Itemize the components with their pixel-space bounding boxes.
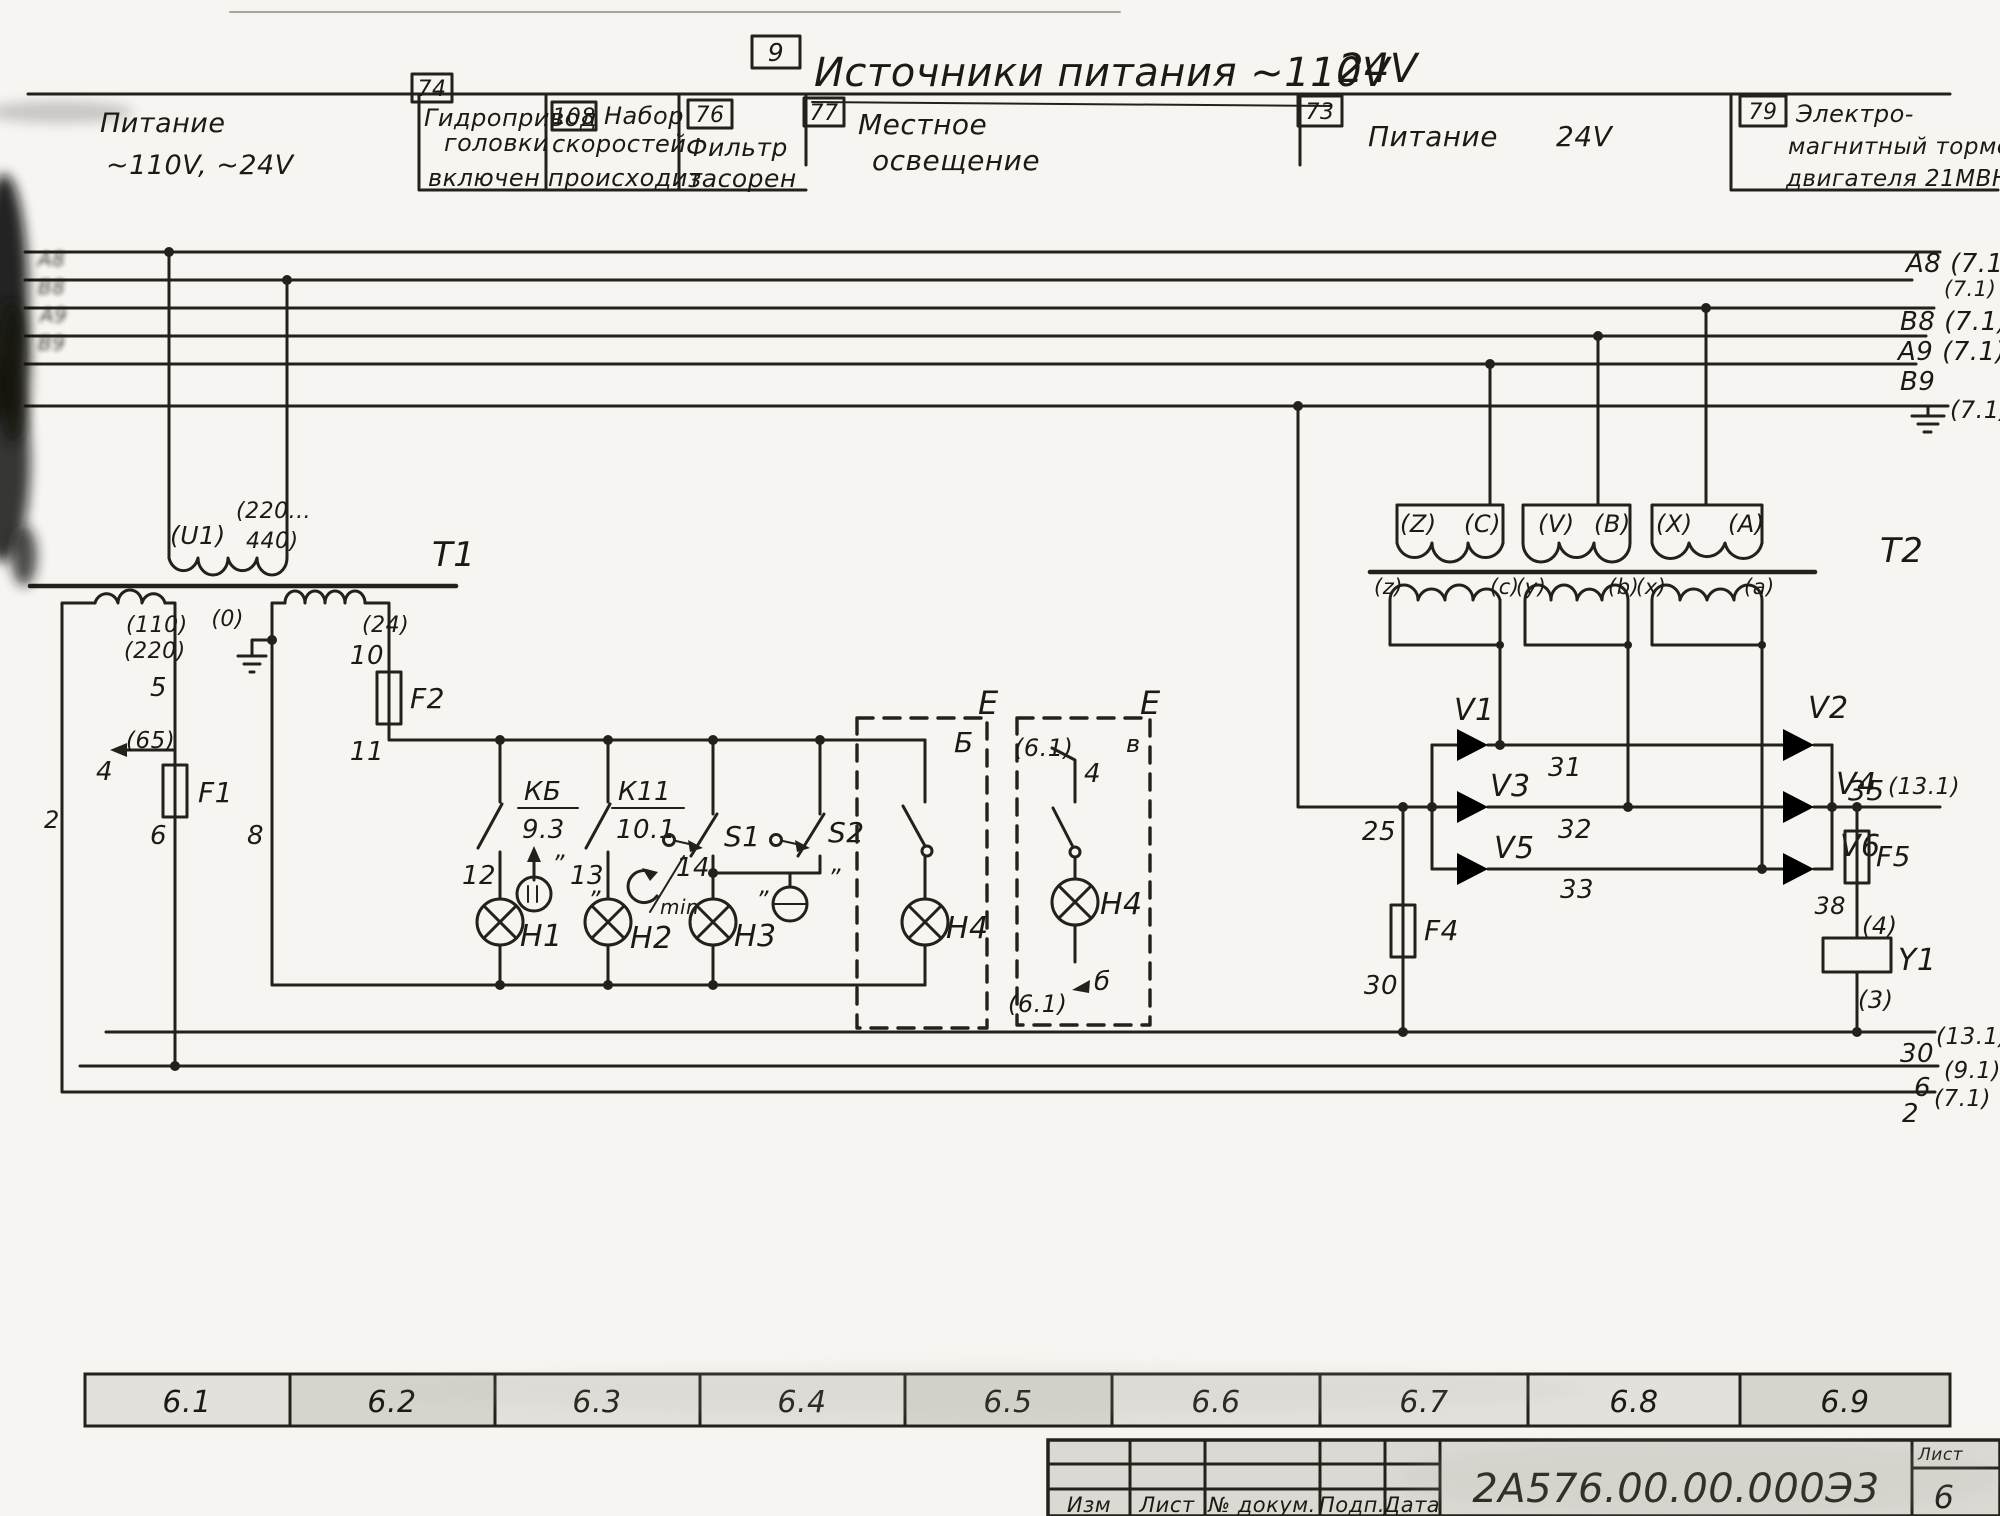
bus-label-left1: А8 [36, 247, 65, 271]
header-power-line2: ~110V, ~24V [106, 150, 296, 181]
wire-31-label: 31 [1548, 753, 1582, 783]
s2-label: S2 [828, 816, 865, 849]
bus-label-a8: А8 (7.1) [1904, 249, 2000, 279]
v1-label: V1 [1454, 693, 1495, 728]
t2-sx: (x) [1636, 575, 1666, 599]
v5-label: V5 [1494, 831, 1535, 866]
terminal-b: б [1094, 967, 1111, 997]
tb-col-podp: Подп. [1319, 1493, 1385, 1516]
t1-w110: (110) [126, 613, 188, 638]
s1-label: S1 [724, 820, 761, 853]
diode-v2 [1783, 729, 1814, 761]
cell73-l1: Питание [1368, 120, 1498, 153]
tap65-arrow [110, 743, 127, 757]
ref-74: 74 [418, 77, 447, 102]
tb-col-dokum: № докум. [1207, 1493, 1316, 1516]
out-2: 2 [1902, 1099, 1919, 1129]
lamp-h4-label: Н4 [946, 911, 989, 946]
ref-79: 79 [1749, 100, 1778, 125]
ref-108: 108 [552, 105, 596, 130]
ref-76: 76 [696, 103, 725, 128]
t2-phase-leads [1500, 645, 1762, 869]
branch-s2 [713, 740, 824, 873]
cell79-l3: двигателя 21МВН [1785, 166, 2000, 192]
wire-2 [62, 603, 1935, 1092]
lamp-h4b-cross [1059, 886, 1091, 918]
t2-sb: (b) [1608, 575, 1639, 599]
t1-t8: 8 [247, 821, 264, 851]
out-30-ref: (13.1) [1936, 1024, 2000, 1050]
t2-sec-frames [1390, 600, 1762, 645]
min-label: min [660, 895, 699, 919]
page-title-suffix: 24V [1338, 46, 1420, 92]
bus-label-left4: В9 [38, 331, 65, 355]
dashed-enclosure-b [857, 718, 987, 1028]
t2-pb: (B) [1594, 510, 1631, 538]
cell108-l3: происходит [548, 164, 703, 192]
ref-61-bottom: (6.1) [1008, 990, 1067, 1018]
h4b-switch-circle [1070, 847, 1080, 857]
v2-label: V2 [1808, 691, 1849, 726]
t2-px: (X) [1656, 510, 1693, 538]
t2-name: Т2 [1880, 531, 1923, 571]
tb-col-izm: Изм [1067, 1493, 1111, 1516]
t1-w220: (220) [124, 639, 186, 664]
t1-sec24-coil [285, 591, 365, 603]
bus-label-b9: В9 [1900, 367, 1935, 397]
enclosure-v-e: Е [1140, 684, 1161, 722]
t2-primary-coil-3 [1652, 543, 1762, 558]
contact-kb-label: КБ [524, 777, 561, 807]
lamp-h3-cross [697, 906, 729, 938]
lamp-h4b-label: Н4 [1100, 887, 1143, 922]
title-underline [812, 102, 1330, 106]
out-2-ref: (7.1) [1934, 1086, 1991, 1112]
cell77-l2: освещение [872, 144, 1040, 177]
diode-v5 [1457, 853, 1488, 885]
ref-61-top: (6.1) [1014, 734, 1073, 762]
hydraulic-icon-bars [528, 886, 537, 902]
cell108-l1: Набор [604, 102, 684, 130]
bus-label-b8: В8 (7.1) [1900, 307, 2000, 337]
cell76-l1: Фильтр [686, 133, 788, 162]
s2-terminal-circle [771, 835, 782, 846]
diode-v6 [1783, 853, 1814, 885]
terminal-25: 25 [1362, 817, 1396, 847]
diode-v3 [1457, 791, 1488, 823]
lamp-h3-label: Н3 [734, 919, 777, 954]
bus-label-a9: А9 (7.1) [1896, 337, 2000, 367]
t2-primary-coil-1 [1397, 543, 1503, 562]
cell79-l2: магнитный тормоз [1788, 134, 2000, 160]
terminal-38: 38 [1814, 892, 1846, 920]
ditto-mark: ” [588, 886, 601, 914]
enclosure-b-sub: Б [954, 726, 974, 759]
t2-pz: (Z) [1400, 510, 1437, 538]
rotation-icon-arrowhead [642, 868, 658, 881]
t2-pa: (A) [1728, 510, 1765, 538]
t1-primary-coil [169, 558, 287, 575]
t2-sz: (z) [1374, 575, 1403, 599]
title-ref-no: 9 [768, 38, 784, 67]
y1-label: Y1 [1898, 943, 1936, 978]
terminal-30: 30 [1364, 971, 1398, 1001]
lamp-h2-label: Н2 [630, 921, 673, 956]
t2-sec-coil-1 [1390, 585, 1500, 600]
contact-kb-ref: 9.3 [522, 815, 565, 845]
t1-t6: 6 [150, 821, 167, 851]
t1-name: Т1 [432, 535, 475, 575]
t2-sy: (y) [1516, 575, 1546, 599]
t2-primary-coil-2 [1523, 543, 1630, 562]
bottom-wires: 30 (13.1) 6 (9.1) 2 (7.1) [106, 1024, 2000, 1129]
ditto-mark: ” [552, 850, 565, 878]
lamp-h4-cross [909, 906, 941, 938]
t1-prim-v1: (220... [236, 499, 311, 524]
cell108-l2: скоростей [552, 130, 686, 158]
ref-131: (13.1) [1888, 774, 1960, 800]
hydraulic-icon [517, 877, 551, 911]
h4-switch-circle [922, 846, 932, 856]
terminal-4b: 4 [1084, 759, 1101, 789]
bus-label-71: (7.1) [1944, 277, 1996, 301]
t2-sa: (a) [1744, 575, 1775, 599]
terminal-35: 35 [1848, 774, 1885, 807]
lamp-h1-cross [484, 906, 516, 938]
wire2-left-label: 2 [44, 806, 60, 834]
junction-dots [164, 247, 1862, 1071]
hydraulic-icon-arrowhead [527, 846, 541, 862]
cell77-l1: Местное [858, 108, 987, 141]
t1-t4: 4 [96, 757, 113, 787]
f1-label: F1 [198, 776, 233, 809]
enclosure-v-sub: в [1126, 730, 1141, 758]
t2-pv: (V) [1538, 510, 1575, 538]
f2-label: F2 [410, 682, 445, 715]
t1-t0: (0) [211, 607, 244, 632]
out-6-ref: (9.1) [1944, 1058, 2000, 1084]
diode-v4 [1783, 791, 1814, 823]
t1-prim-v2: 440) [246, 529, 299, 554]
out-30: 30 [1900, 1039, 1934, 1069]
tb-col-list: Лист [1138, 1493, 1194, 1516]
page-title: Источники питания ~110V [814, 50, 1392, 96]
schematic-canvas: 9 Источники питания ~110V 24V Питание ~1… [0, 0, 2000, 1516]
ditto-mark: ” [756, 886, 769, 914]
t1-t5: 5 [150, 673, 167, 703]
t1-t11: 11 [350, 737, 384, 767]
ref-77: 77 [810, 101, 839, 126]
t1-w24: (24) [362, 613, 409, 638]
ground-symbol-t1 [238, 640, 272, 672]
v3-label: V3 [1490, 769, 1531, 804]
cell74-l3: включен [428, 164, 540, 192]
neutral-riser [1298, 406, 1432, 807]
ground-symbol-right [1912, 406, 1944, 432]
contact-k11-ref: 10.1 [616, 815, 676, 845]
transformer-t1: Т1 (U1) (220... 440) (110) (220) 5 (65) … [30, 252, 1938, 1092]
tb-col-data: Дата [1383, 1493, 1440, 1516]
t1-u1: (U1) [170, 521, 226, 550]
cell74-l2: головки [444, 129, 549, 157]
enclosure-b-e: Е [978, 684, 999, 722]
zone-6-9: 6.9 [1820, 1385, 1869, 1420]
zone-6-1: 6.1 [162, 1385, 211, 1420]
bus-label-gnd: (7.1) [1950, 396, 2000, 424]
t1-24v-lead-and-lamp-bus [365, 603, 925, 740]
contact-k11-label: К11 [618, 777, 671, 807]
bus-label-left3: А9 [38, 303, 67, 327]
bus-lines: А8 (7.1) (7.1) В8 (7.1) А9 (7.1) В9 (7.1… [25, 247, 2000, 432]
ref-73: 73 [1306, 100, 1335, 125]
f5-label: F5 [1876, 840, 1911, 873]
cell79-l1: Электро- [1795, 100, 1914, 128]
schematic-sheet: 9 Источники питания ~110V 24V Питание ~1… [0, 0, 2000, 1516]
t1-t10: 10 [350, 641, 384, 671]
terminal-p3: (3) [1858, 986, 1894, 1014]
t1-sec110-coil [95, 590, 165, 603]
ditto-mark: ” [828, 864, 841, 892]
bus-label-left2: В8 [38, 275, 65, 299]
cell73-l2: 24V [1556, 120, 1614, 153]
t1-t65: (65) [126, 728, 175, 754]
diode-v1 [1457, 729, 1488, 761]
zone-6-8: 6.8 [1609, 1385, 1658, 1420]
terminal-14: 14 [676, 853, 710, 883]
t2-pc: (C) [1464, 510, 1501, 538]
f4-label: F4 [1424, 914, 1459, 947]
t2-primary-frames [1397, 505, 1762, 543]
terminal-b-arrow [1072, 980, 1090, 993]
brake-coil-y1 [1823, 938, 1891, 972]
terminal-p4: (4) [1862, 912, 1898, 940]
lamp-h1-label: Н1 [520, 919, 563, 954]
wire-32-label: 32 [1558, 815, 1592, 845]
lamp-panel: КБ 9.3 12 Н1 ” К11 10.1 13 Н2 min 14 ” S… [462, 684, 1161, 1028]
cell76-l2: засорен [688, 164, 797, 193]
sheet-title: 9 Источники питания ~110V 24V [230, 12, 1420, 106]
branch-h4 [903, 740, 925, 985]
terminal-12: 12 [462, 861, 496, 891]
wire-33-label: 33 [1560, 875, 1594, 905]
